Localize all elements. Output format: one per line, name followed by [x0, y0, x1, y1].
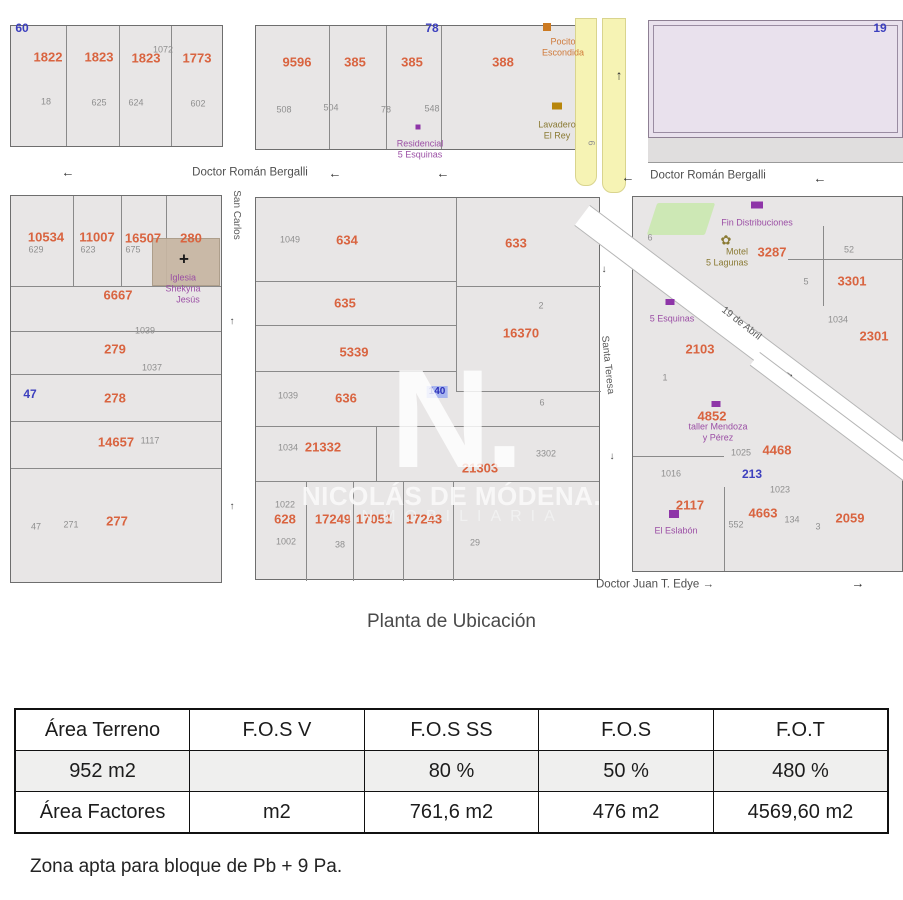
parcel-label: 17249 — [315, 513, 351, 526]
map-caption: Planta de Ubicación — [0, 611, 903, 633]
parcel-label: 21332 — [305, 441, 341, 454]
parcel-label: 625 — [91, 99, 106, 108]
street-label-edye: Doctor Juan T. Edye → — [596, 579, 714, 591]
parcel-label: 9596 — [283, 56, 312, 69]
poi-label: Motel — [726, 248, 748, 257]
parcel-label: 1117 — [141, 437, 160, 446]
parcel-label: 5 — [803, 278, 808, 287]
poi-label: Iglesia — [170, 274, 196, 283]
table-cell: 761,6 m2 — [364, 792, 539, 834]
street-direction-arrow: ↑ — [616, 69, 623, 82]
poi-label: El Rey — [544, 132, 571, 141]
parcel-label: 4468 — [763, 444, 792, 457]
parcel-label: 1 — [662, 374, 667, 383]
poi-label: Jesús — [176, 296, 200, 305]
poi-marker-icon — [666, 299, 675, 305]
poi-label: Residencial — [397, 140, 444, 149]
green-area — [647, 203, 715, 235]
header-cell: F.O.S — [539, 709, 714, 751]
map-block — [255, 25, 580, 150]
header-cell: F.O.T — [713, 709, 888, 751]
parcel-label: 385 — [401, 56, 423, 69]
table-cell: 4569,60 m2 — [713, 792, 888, 834]
parcel-label: 21303 — [462, 462, 498, 475]
parcel-label: 508 — [276, 106, 291, 115]
parcel-label: 19 — [873, 22, 886, 34]
parcel-label: 3302 — [536, 450, 556, 459]
cart-icon — [669, 510, 679, 518]
parcel-label: 1022 — [275, 501, 295, 510]
poi-marker-icon — [712, 401, 721, 407]
parcel-label: 18 — [41, 98, 51, 107]
header-cell: F.O.S V — [190, 709, 365, 751]
parcel-label: 634 — [336, 234, 358, 247]
table-cell: 80 % — [364, 751, 539, 792]
laundry-icon — [552, 103, 562, 110]
parcel-label: 548 — [424, 105, 439, 114]
parcel-label: 636 — [335, 392, 357, 405]
parcel-label: 1037 — [142, 364, 162, 373]
parcel-label: 1072 — [153, 46, 173, 55]
table-cell: 50 % — [539, 751, 714, 792]
parcel-label: 1773 — [183, 52, 212, 65]
parcel-label: 16370 — [503, 327, 539, 340]
street-direction-arrow: ↑ — [230, 502, 235, 512]
parcel-label: 271 — [63, 521, 78, 530]
zone-note: Zona apta para bloque de Pb + 9 Pa. — [30, 856, 342, 878]
parcel-label: 388 — [492, 56, 514, 69]
parcel-label: 3287 — [758, 246, 787, 259]
poi-label: 5 Lagunas — [706, 259, 748, 268]
street-direction-arrow: ← — [814, 172, 827, 185]
parcel-label: 213 — [742, 468, 762, 480]
yellow-road — [575, 18, 597, 186]
street-label-san-carlos: San Carlos — [231, 190, 241, 239]
parcel-label: 628 — [274, 513, 296, 526]
parcel-label: 552 — [728, 521, 743, 530]
poi-label: Escondida — [542, 49, 584, 58]
parcel-label: 385 — [344, 56, 366, 69]
street-direction-arrow: ↑ — [230, 317, 235, 327]
street-direction-arrow: ← — [62, 166, 75, 179]
map-canvas: N. NICOLÁS DE MÓDENA. INMOBILIARIA Docto… — [0, 0, 903, 600]
poi-label: Fin Distribuciones — [721, 219, 793, 228]
table-row: Área Factores m2 761,6 m2 476 m2 4569,60… — [15, 792, 888, 834]
parcel-label: 1049 — [280, 236, 300, 245]
poi-label: y Pérez — [703, 434, 734, 443]
parcel-label: 1822 — [34, 51, 63, 64]
poi-marker-icon — [543, 23, 551, 31]
poi-label: Shekyna — [165, 285, 200, 294]
parcel-label: 10534 — [28, 231, 64, 244]
parcel-label: 5339 — [340, 346, 369, 359]
parcel-label: 134 — [784, 516, 799, 525]
parcel-label: 2059 — [836, 512, 865, 525]
parcel-label: 2117 — [676, 499, 704, 512]
parcel-label: 1025 — [731, 449, 751, 458]
parcel-label: 47 — [23, 388, 36, 400]
street-shoulder — [648, 138, 903, 163]
parcel-label: 38 — [335, 541, 345, 550]
parcel-label: 3301 — [838, 275, 867, 288]
street-direction-arrow: ↓ — [602, 265, 607, 275]
parcel-label: 2 — [538, 302, 543, 311]
parcel-label: 1016 — [661, 470, 681, 479]
factors-table: Área Terreno F.O.S V F.O.S SS F.O.S F.O.… — [14, 708, 889, 834]
parcel-label: 17243 — [406, 513, 442, 526]
parcel-label: 279 — [104, 343, 126, 356]
parcel-label: 6667 — [104, 289, 133, 302]
header-cell: Área Terreno — [15, 709, 190, 751]
parcel-label: 78 — [381, 106, 391, 115]
street-direction-arrow: → — [852, 577, 865, 590]
highlighted-parcel: 140 — [427, 386, 448, 398]
parcel-label: 14657 — [98, 436, 134, 449]
table-cell — [190, 751, 365, 792]
street-direction-arrow: ↓ — [610, 452, 615, 462]
map-block — [10, 25, 223, 147]
parcel-label: 624 — [128, 99, 143, 108]
parcel-label: 4663 — [749, 507, 778, 520]
street-direction-arrow: ← — [437, 167, 450, 180]
street-label-santa-teresa: Santa Teresa — [599, 335, 615, 394]
poi-label: taller Mendoza — [688, 423, 747, 432]
parcel-label: 675 — [125, 246, 140, 255]
parcel-label: 623 — [80, 246, 95, 255]
parcel-label: 11007 — [79, 231, 114, 244]
parcel-label: 280 — [180, 232, 202, 245]
street-label-bergalli-west: Doctor Román Bergalli — [192, 167, 308, 179]
parcel-label: 2301 — [860, 330, 889, 343]
parcel-label: 2103 — [686, 343, 715, 356]
poi-label: El Eslabón — [654, 527, 697, 536]
store-icon — [751, 202, 763, 209]
parcel-label: 16507 — [125, 232, 161, 245]
parcel-label: 47 — [31, 523, 41, 532]
document-page: N. NICOLÁS DE MÓDENA. INMOBILIARIA Docto… — [0, 0, 903, 900]
table-cell: 476 m2 — [539, 792, 714, 834]
parcel-label: 602 — [190, 100, 205, 109]
parcel-label: 1034 — [278, 444, 298, 453]
parcel-label: 633 — [505, 237, 527, 250]
table-cell: m2 — [190, 792, 365, 834]
table-cell: 480 % — [713, 751, 888, 792]
table-cell: 952 m2 — [15, 751, 190, 792]
parcel-label: 29 — [470, 539, 480, 548]
parcel-label: 629 — [28, 246, 43, 255]
parcel-label: 17051 — [356, 513, 392, 526]
route-number: 6 — [647, 234, 652, 243]
parcel-label: 52 — [844, 246, 854, 255]
flower-icon: ✿ — [721, 234, 732, 247]
yellow-road — [602, 18, 626, 193]
church-cross-icon: + — [179, 251, 189, 268]
parcel-label: 6 — [539, 399, 544, 408]
parcel-label: 504 — [323, 104, 338, 113]
parcel-label: 1034 — [828, 316, 848, 325]
parcel-label: 635 — [334, 297, 356, 310]
header-cell: F.O.S SS — [364, 709, 539, 751]
parcel-label: 1023 — [770, 486, 790, 495]
table-cell: Área Factores — [15, 792, 190, 834]
street-label-bergalli-east: Doctor Román Bergalli — [650, 170, 766, 182]
parcel-label: 1039 — [135, 327, 155, 336]
poi-label: Lavadero — [538, 121, 576, 130]
parcel-label: 1002 — [276, 538, 296, 547]
street-direction-arrow: ← — [329, 167, 342, 180]
parcel-label: 277 — [106, 515, 128, 528]
parcel-label: 1823 — [85, 51, 114, 64]
poi-label: 5 Esquinas — [650, 315, 695, 324]
route-number: 6 — [587, 140, 596, 145]
parcel-label: 278 — [104, 392, 126, 405]
poi-dot-icon — [416, 125, 421, 130]
street-direction-arrow: ← — [622, 171, 635, 184]
map-block-lavender — [648, 20, 903, 138]
parcel-label: 60 — [15, 22, 28, 34]
poi-label: Pocito — [550, 38, 575, 47]
table-row: 952 m2 80 % 50 % 480 % — [15, 751, 888, 792]
parcel-label: 1039 — [278, 392, 298, 401]
parcel-label: 3 — [815, 523, 820, 532]
parcel-label: 78 — [425, 22, 438, 34]
table-header-row: Área Terreno F.O.S V F.O.S SS F.O.S F.O.… — [15, 709, 888, 751]
poi-label: 5 Esquinas — [398, 151, 443, 160]
